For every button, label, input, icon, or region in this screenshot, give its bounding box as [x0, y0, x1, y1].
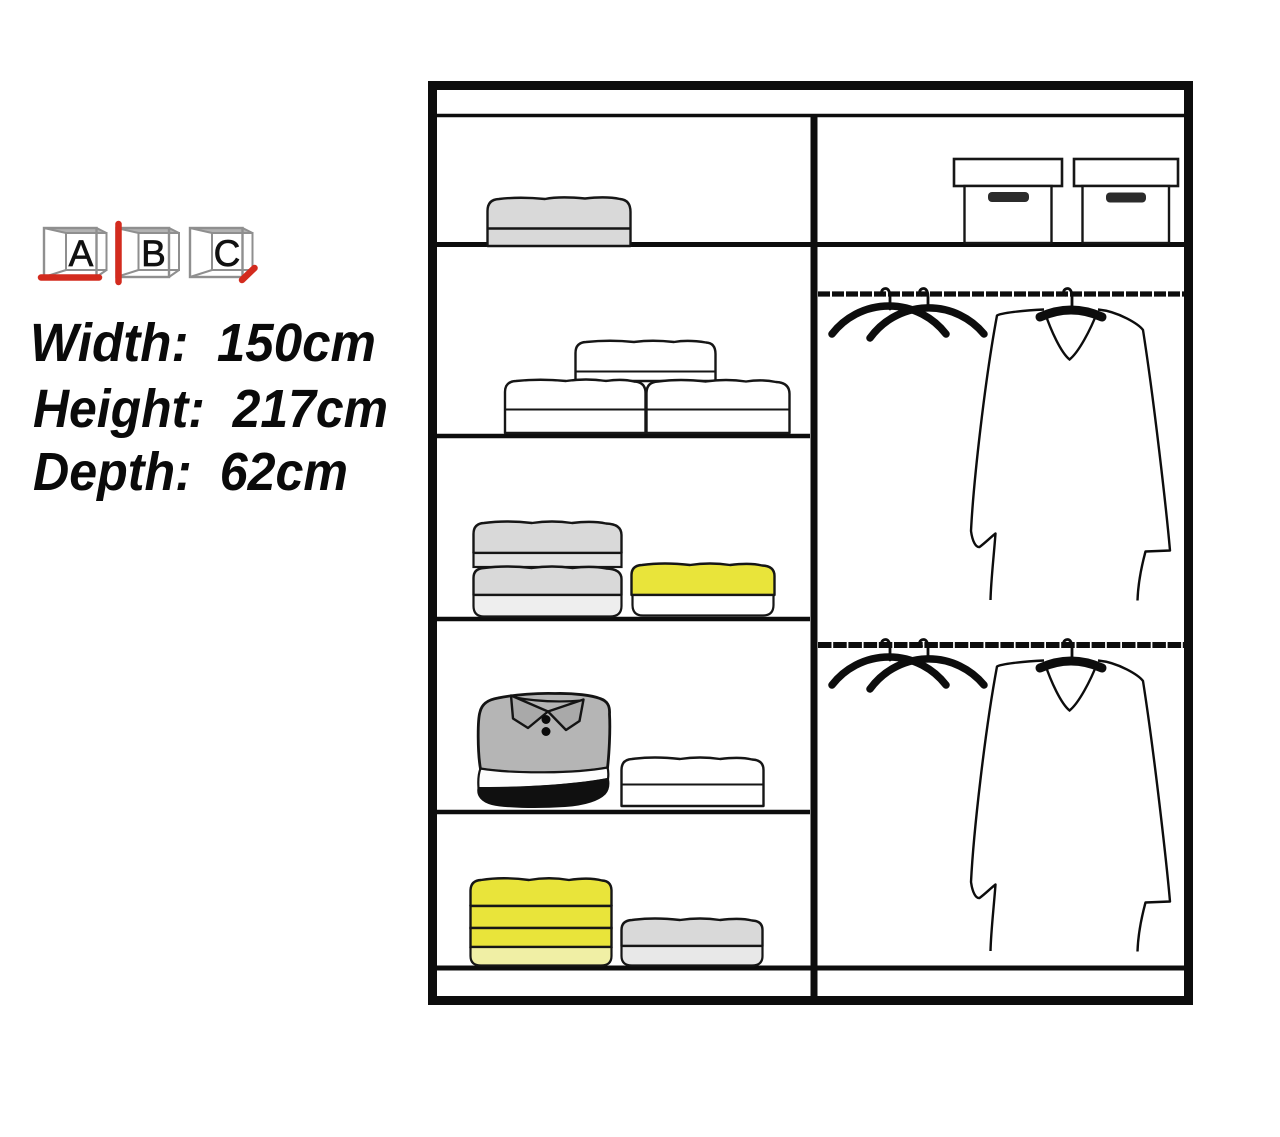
- svg-text:C: C: [214, 233, 241, 274]
- svg-text:Depth: 62cm: Depth: 62cm: [33, 442, 348, 502]
- svg-text:Height: 217cm: Height: 217cm: [33, 379, 388, 439]
- svg-text:B: B: [141, 233, 166, 274]
- svg-text:Width: 150cm: Width: 150cm: [30, 313, 376, 373]
- svg-text:A: A: [69, 233, 94, 274]
